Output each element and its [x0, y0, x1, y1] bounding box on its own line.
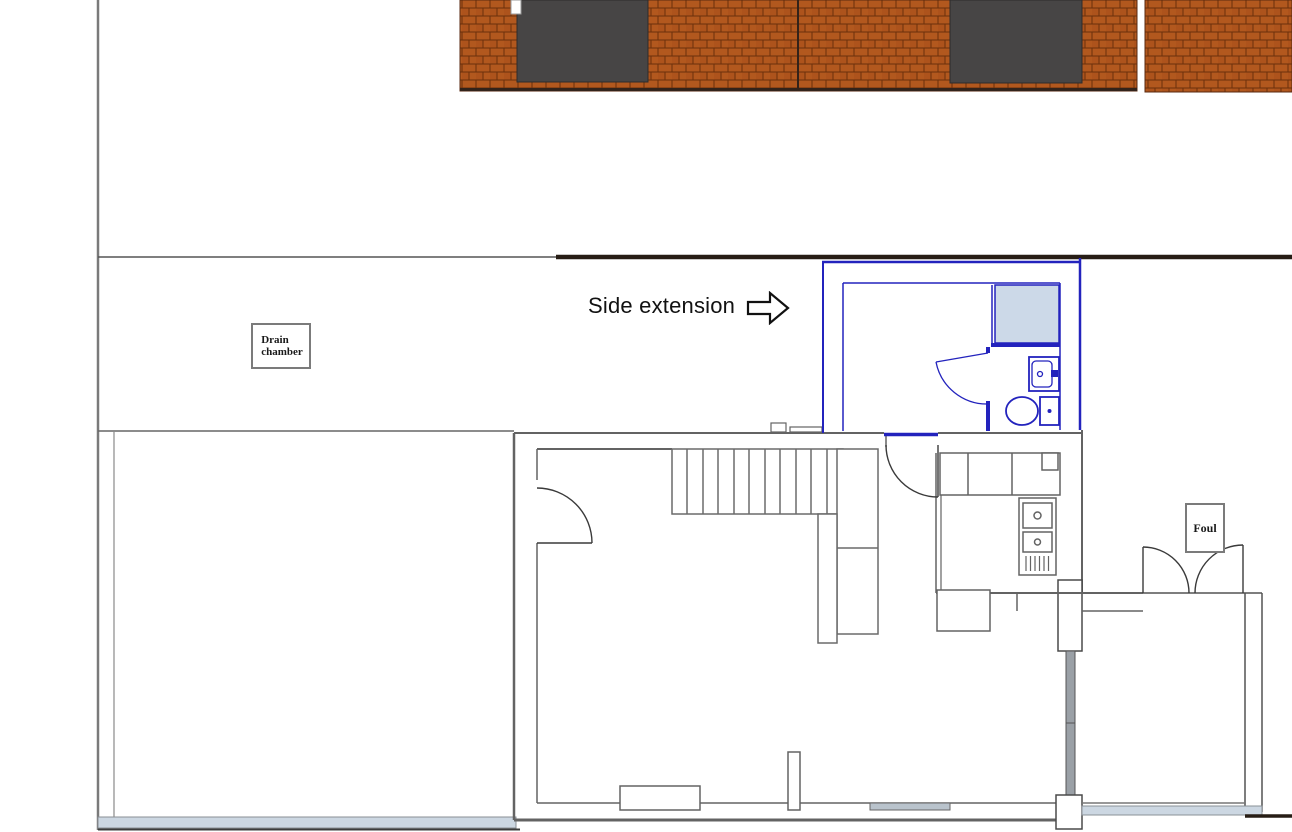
- stub-wall: [788, 752, 800, 810]
- toilet: [1006, 397, 1059, 425]
- stair-wall: [837, 449, 878, 634]
- stair-newel-wall: [818, 514, 837, 643]
- drain-chamber-box: Drain chamber: [251, 323, 311, 369]
- kitchen-door: [886, 445, 938, 497]
- worktop-corner: [1042, 453, 1058, 470]
- brick-elevation: [460, 0, 1292, 92]
- property-boundary: [98, 0, 1292, 830]
- foul-label: Foul: [1193, 521, 1216, 536]
- foul-box: Foul: [1185, 503, 1225, 553]
- sink-tap: [1051, 370, 1058, 377]
- dining-unit: [937, 590, 990, 631]
- conservatory: [1082, 545, 1292, 816]
- flue-pipe: [511, 0, 521, 14]
- brick-wall-neighbour: [1145, 0, 1292, 92]
- external-step-wide: [790, 427, 822, 432]
- external-step-small: [771, 423, 786, 432]
- garden-paving: [98, 817, 520, 830]
- bathroom-sink: [1029, 357, 1059, 391]
- floor-plan-drawing: [0, 0, 1292, 832]
- side-extension-label: Side extension: [588, 293, 735, 319]
- shower-tray: [995, 285, 1059, 343]
- fireplace: [620, 786, 700, 810]
- roof-window-left: [517, 0, 648, 82]
- wall-pier-bottom: [1056, 795, 1082, 829]
- side-extension-plan: [822, 258, 1081, 435]
- kitchen-units: [940, 453, 1060, 575]
- staircase: [672, 449, 878, 643]
- rear-window: [870, 803, 950, 810]
- conservatory-glazed-base: [1082, 806, 1262, 815]
- roof-window-right: [950, 0, 1082, 83]
- direction-arrow-icon: [746, 291, 790, 325]
- drain-chamber-label: Drain chamber: [261, 334, 303, 358]
- kitchen-sink-unit: [1019, 498, 1056, 575]
- floor-plan-canvas: Side extension Drain chamber Foul: [0, 0, 1292, 832]
- hall-door: [537, 488, 592, 543]
- bathroom-door: [936, 353, 988, 404]
- wall-pier-top: [1058, 580, 1082, 651]
